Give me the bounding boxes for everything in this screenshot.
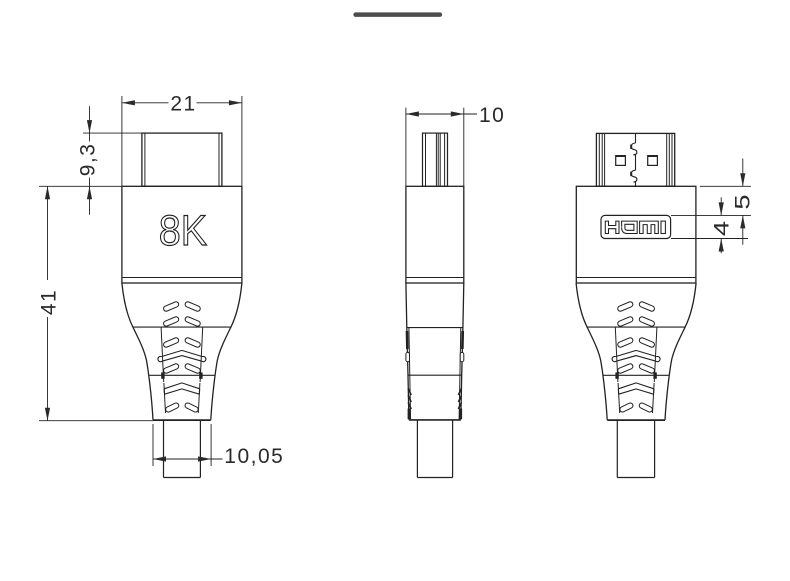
- svg-text:4: 4: [710, 219, 733, 236]
- svg-text:5: 5: [731, 192, 754, 209]
- svg-text:41: 41: [38, 289, 61, 315]
- svg-text:10,05: 10,05: [224, 445, 284, 468]
- svg-text:21: 21: [170, 93, 196, 116]
- svg-text:10: 10: [479, 104, 505, 127]
- svg-text:8K: 8K: [159, 206, 208, 254]
- svg-text:9,3: 9,3: [77, 143, 100, 177]
